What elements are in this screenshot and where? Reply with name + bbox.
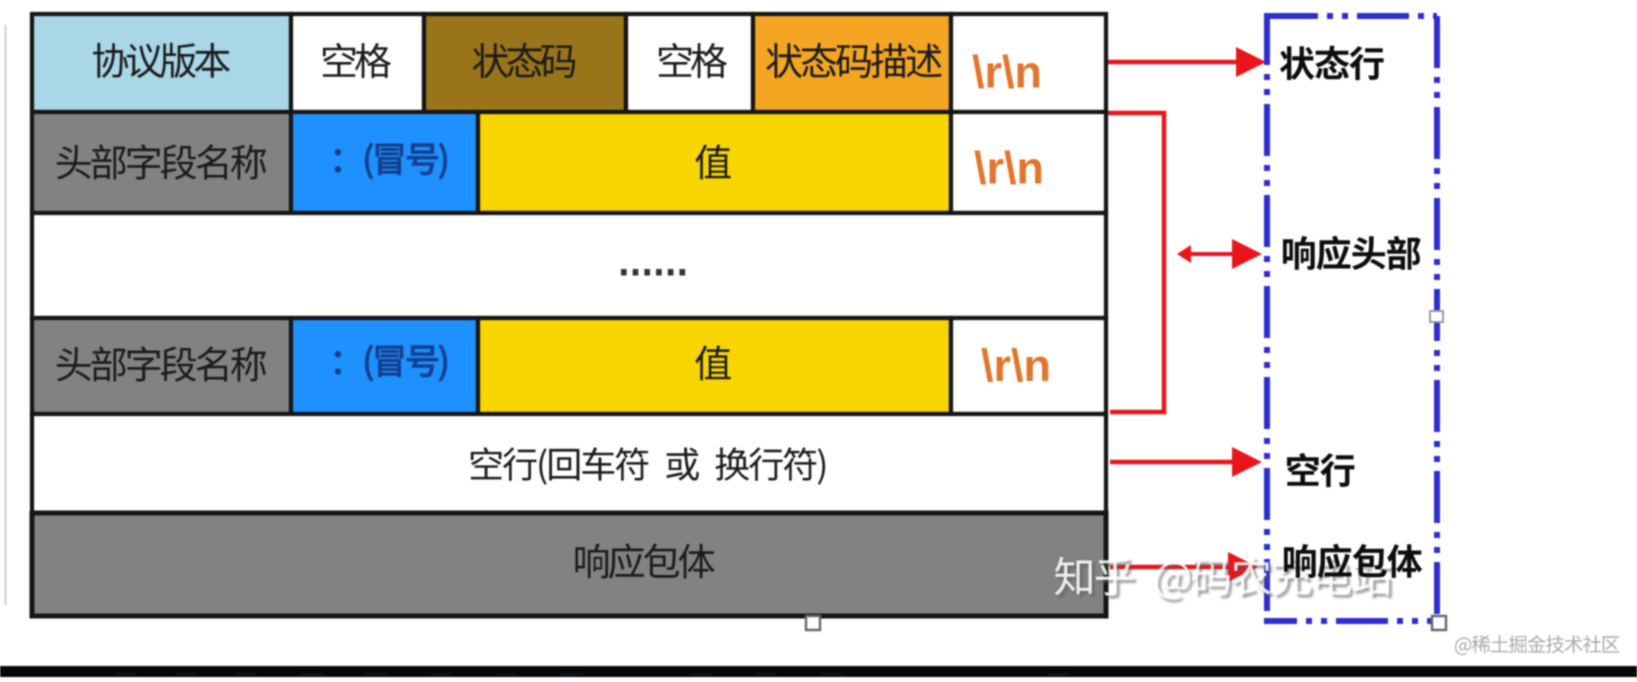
svg-text:\r\n: \r\n (974, 143, 1044, 194)
svg-text:\r\n: \r\n (972, 47, 1042, 98)
svg-text:\r\n: \r\n (981, 340, 1051, 391)
